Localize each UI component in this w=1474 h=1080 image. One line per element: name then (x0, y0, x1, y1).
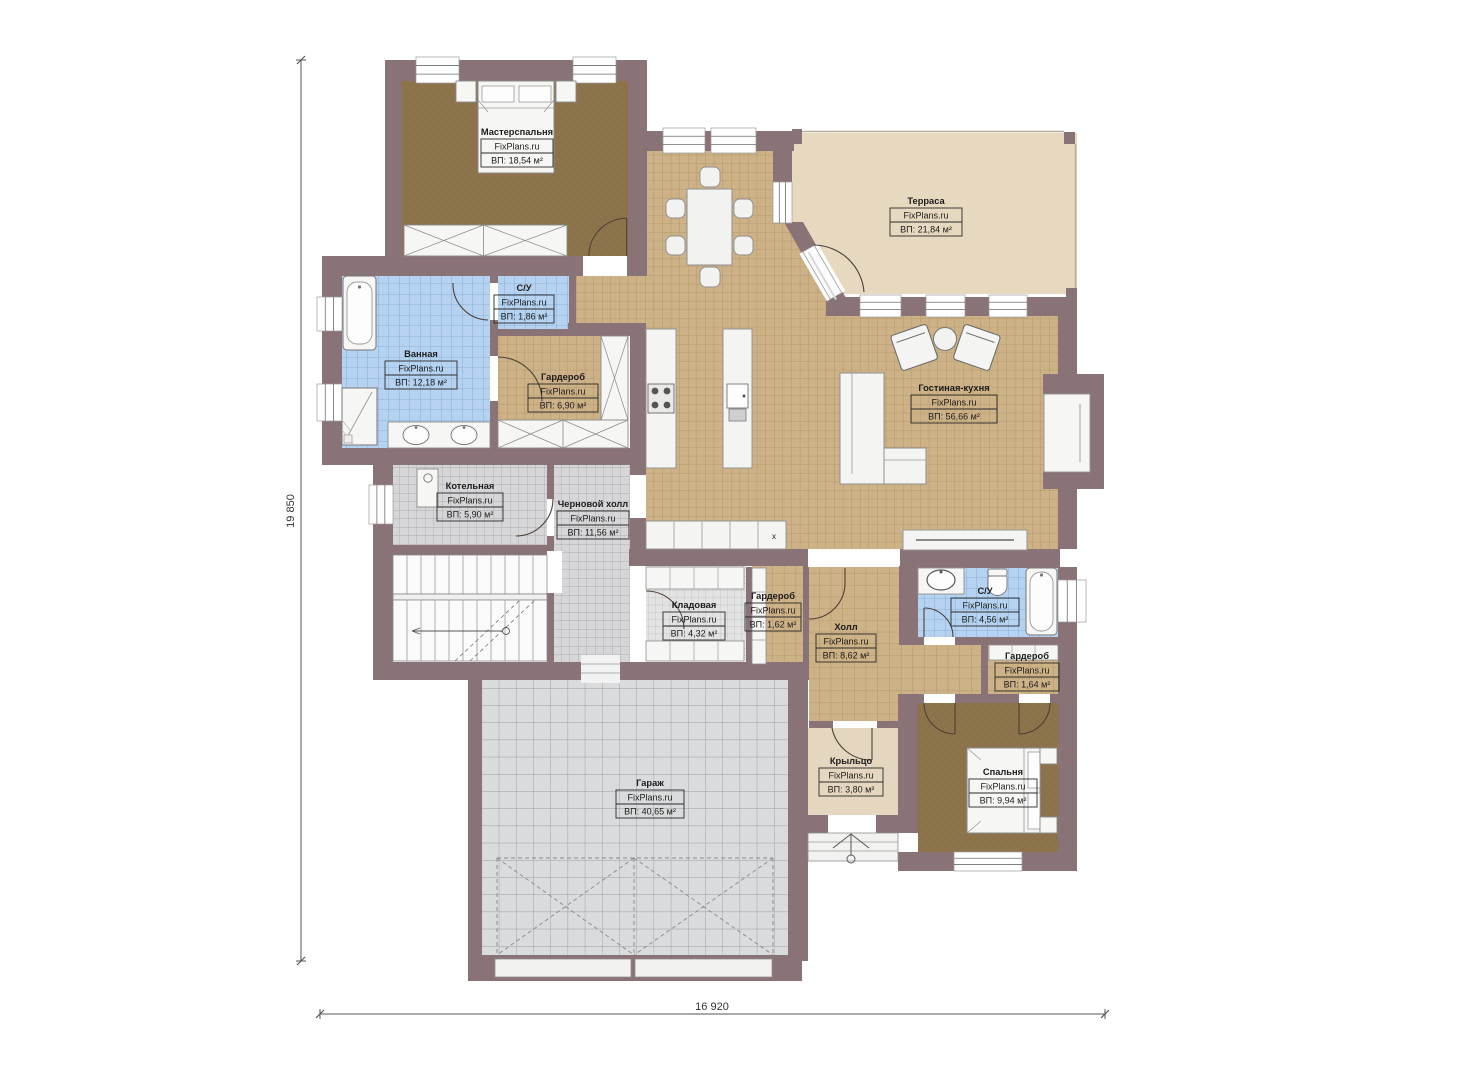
svg-text:FixPlans.ru: FixPlans.ru (980, 782, 1025, 792)
svg-text:Ванная: Ванная (404, 349, 438, 359)
svg-text:Черновой холл: Черновой холл (558, 499, 629, 509)
svg-text:С/У: С/У (977, 586, 992, 596)
svg-text:FixPlans.ru: FixPlans.ru (447, 496, 492, 506)
svg-text:FixPlans.ru: FixPlans.ru (1004, 666, 1049, 676)
svg-text:ВП: 12,18 м²: ВП: 12,18 м² (395, 378, 447, 388)
svg-text:ВП: 1,62 м²: ВП: 1,62 м² (750, 620, 797, 630)
svg-text:FixPlans.ru: FixPlans.ru (823, 637, 868, 647)
svg-text:FixPlans.ru: FixPlans.ru (903, 211, 948, 221)
svg-text:Гардероб: Гардероб (751, 591, 795, 601)
svg-text:С/У: С/У (516, 283, 531, 293)
svg-text:19 850: 19 850 (285, 494, 297, 528)
svg-text:ВП: 11,56 м²: ВП: 11,56 м² (567, 528, 618, 538)
svg-text:FixPlans.ru: FixPlans.ru (494, 142, 539, 152)
svg-text:FixPlans.ru: FixPlans.ru (627, 793, 672, 803)
svg-text:Котельная: Котельная (446, 481, 495, 491)
svg-text:Гардероб: Гардероб (541, 372, 585, 382)
svg-text:ВП: 6,90 м²: ВП: 6,90 м² (540, 401, 587, 411)
svg-text:ВП: 56,66 м²: ВП: 56,66 м² (928, 412, 980, 422)
svg-text:ВП: 5,90 м²: ВП: 5,90 м² (447, 510, 494, 520)
svg-text:ВП: 9,94 м²: ВП: 9,94 м² (980, 796, 1027, 806)
svg-text:ВП: 21,84 м²: ВП: 21,84 м² (900, 225, 952, 235)
svg-text:ВП: 18,54 м²: ВП: 18,54 м² (491, 156, 543, 166)
svg-text:Холл: Холл (834, 622, 857, 632)
svg-text:x: x (772, 532, 776, 541)
svg-text:Мастерспальня: Мастерспальня (481, 127, 553, 137)
svg-text:Терраса: Терраса (907, 196, 945, 206)
svg-text:FixPlans.ru: FixPlans.ru (750, 606, 795, 616)
svg-text:FixPlans.ru: FixPlans.ru (828, 771, 873, 781)
svg-text:16 920: 16 920 (695, 1001, 729, 1013)
svg-text:ВП: 3,80 м²: ВП: 3,80 м² (828, 785, 875, 795)
svg-text:Гардероб: Гардероб (1005, 651, 1049, 661)
svg-text:ВП: 4,32 м²: ВП: 4,32 м² (671, 629, 718, 639)
svg-text:Гараж: Гараж (636, 778, 664, 788)
svg-text:Спальня: Спальня (983, 767, 1023, 777)
svg-text:ВП: 40,65 м²: ВП: 40,65 м² (624, 807, 676, 817)
svg-text:FixPlans.ru: FixPlans.ru (570, 514, 615, 524)
svg-text:FixPlans.ru: FixPlans.ru (962, 601, 1007, 611)
svg-text:ВП: 1,64 м²: ВП: 1,64 м² (1004, 680, 1051, 690)
svg-text:ВП: 4,56 м²: ВП: 4,56 м² (962, 615, 1009, 625)
svg-text:Гостиная-кухня: Гостиная-кухня (918, 383, 989, 393)
svg-text:FixPlans.ru: FixPlans.ru (540, 387, 585, 397)
svg-text:Крыльцо: Крыльцо (830, 756, 873, 766)
svg-text:ВП: 1,86 м²: ВП: 1,86 м² (501, 312, 548, 322)
svg-text:Кладовая: Кладовая (672, 600, 717, 610)
svg-text:FixPlans.ru: FixPlans.ru (501, 298, 546, 308)
svg-text:ВП: 8,62 м²: ВП: 8,62 м² (823, 651, 870, 661)
svg-text:FixPlans.ru: FixPlans.ru (398, 364, 443, 374)
svg-text:FixPlans.ru: FixPlans.ru (671, 615, 716, 625)
svg-text:FixPlans.ru: FixPlans.ru (931, 398, 976, 408)
